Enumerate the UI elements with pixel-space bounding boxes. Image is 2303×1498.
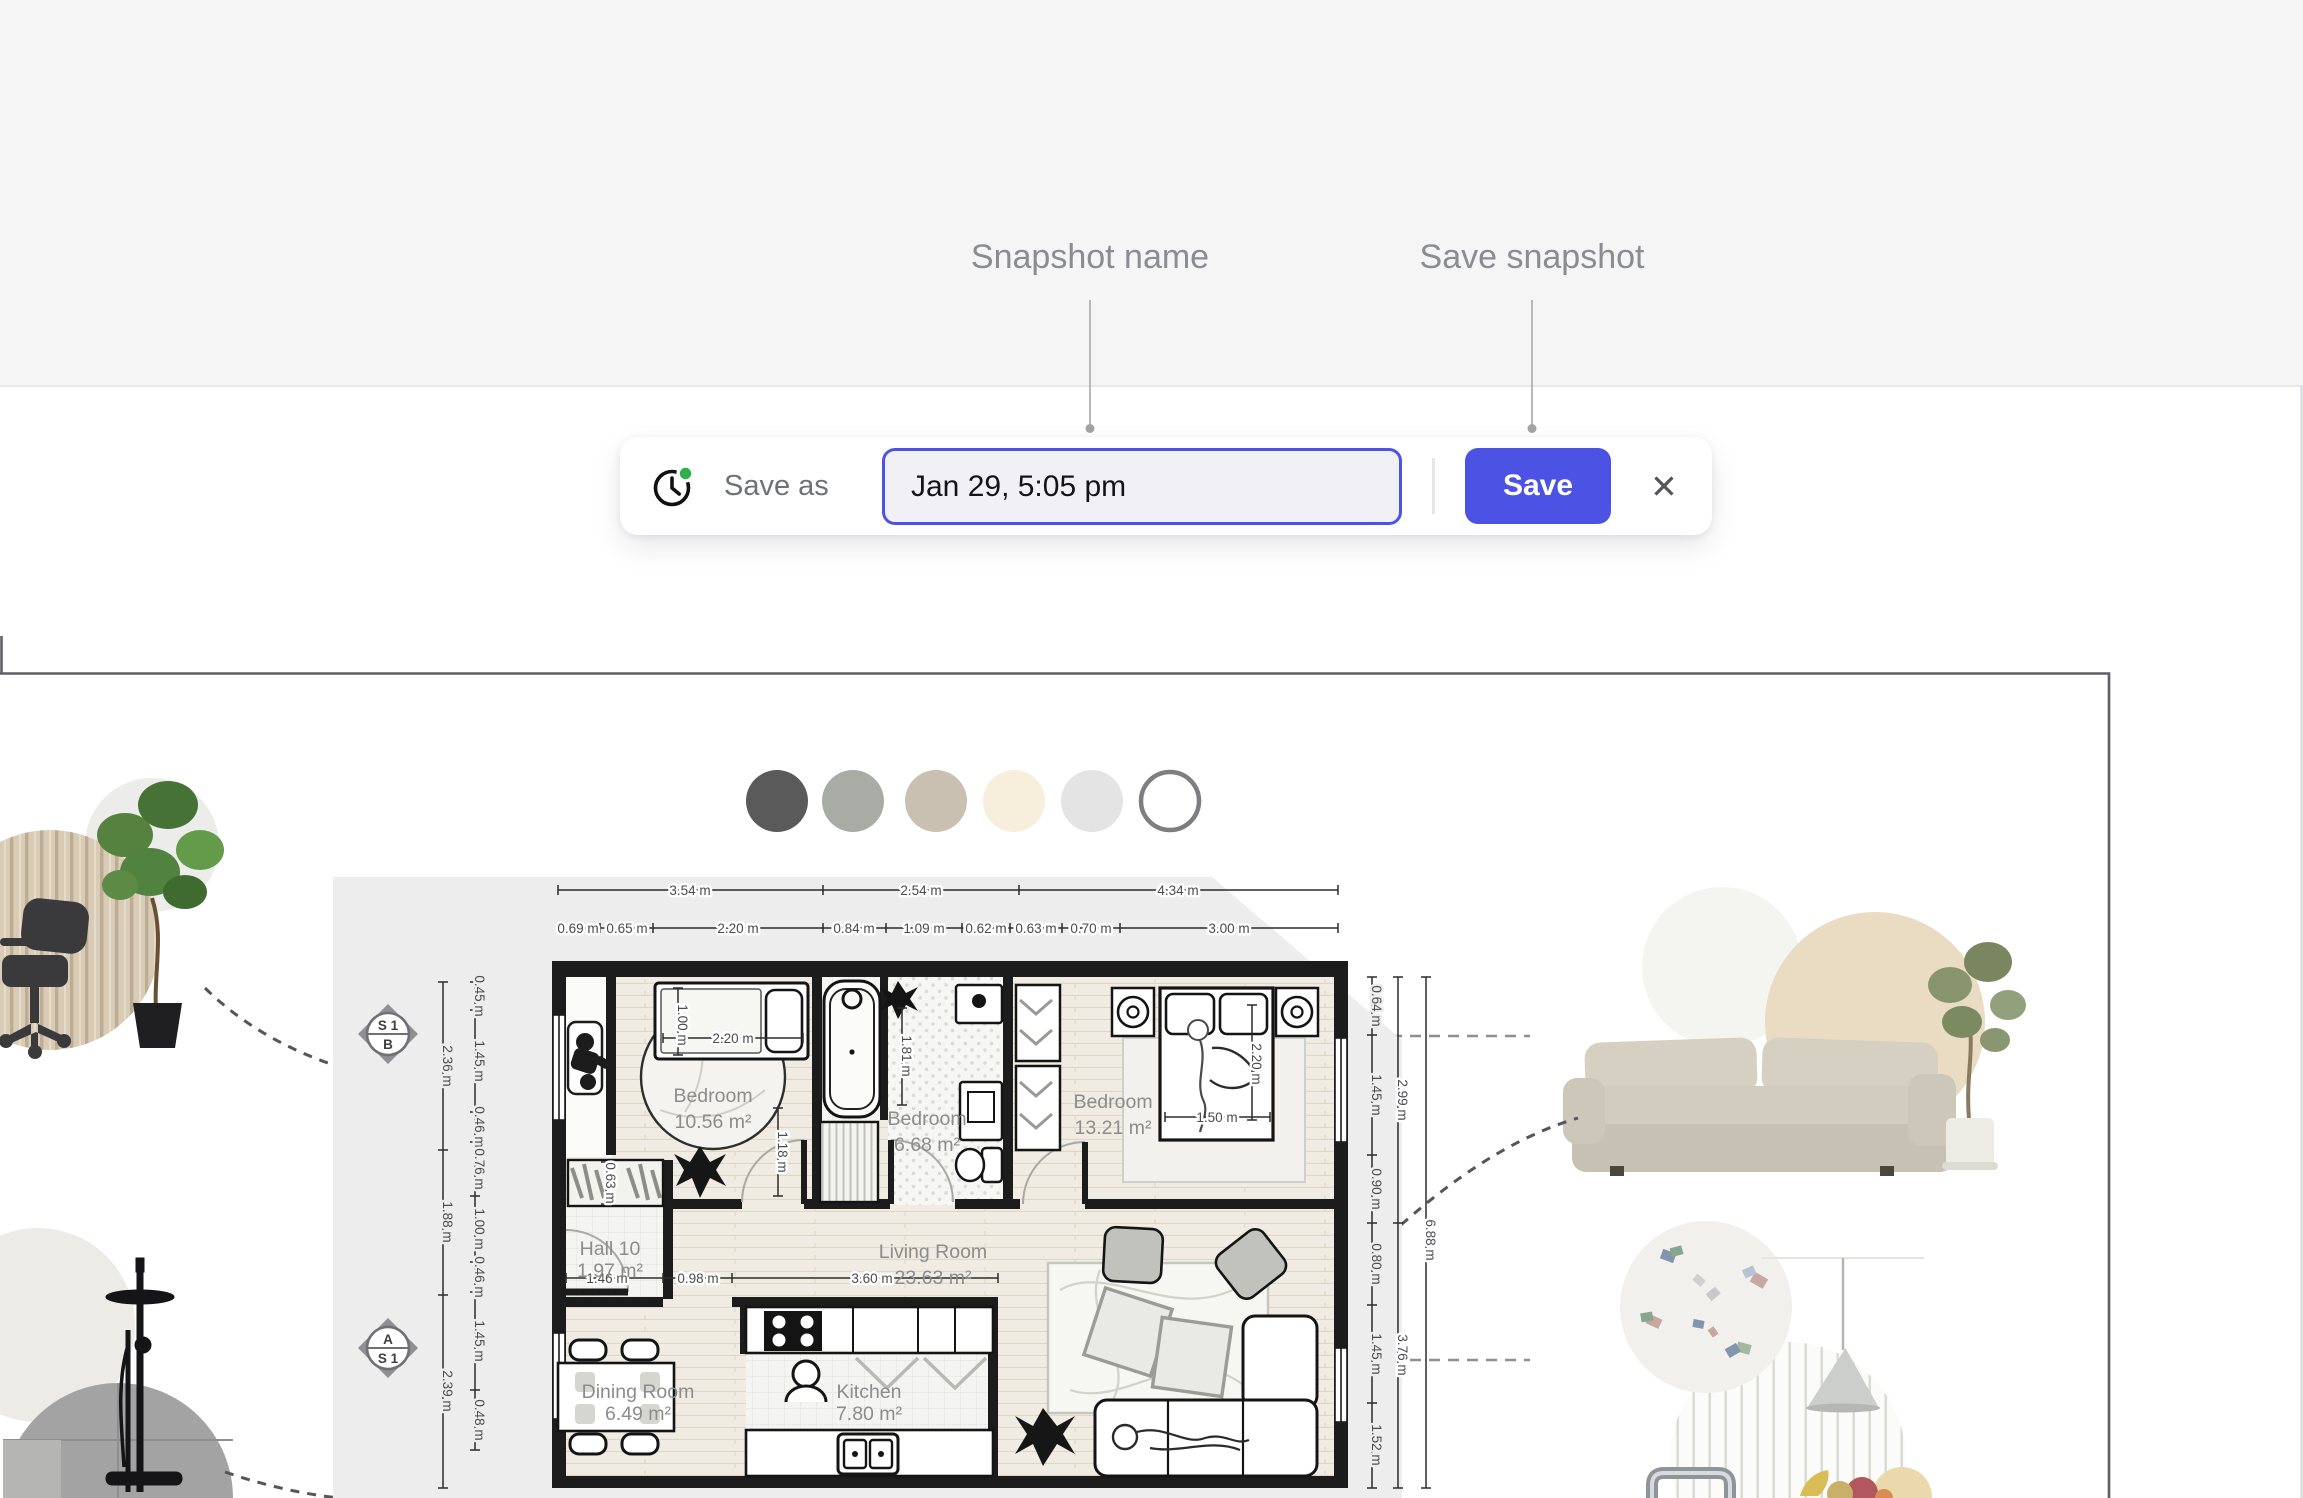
- annotation-banner: Snapshot name Save snapshot: [0, 0, 2303, 387]
- svg-text:1.52 m: 1.52 m: [1369, 1424, 1384, 1465]
- design-canvas[interactable]: 3.54 m 2.54 m 4.34 m 0.69 m 0.65 m 2.20 …: [0, 386, 2303, 1498]
- svg-text:3.00 m: 3.00 m: [1208, 921, 1249, 936]
- moodboard-sofa[interactable]: [1563, 887, 2026, 1176]
- annotation-snapshot-name: Snapshot name: [971, 238, 1209, 277]
- sofa: [1563, 1037, 1956, 1176]
- moodboard-office-chair[interactable]: [0, 778, 224, 1059]
- svg-text:3.54 m: 3.54 m: [669, 883, 710, 898]
- svg-text:0.69 m: 0.69 m: [557, 921, 598, 936]
- svg-text:1.00 m: 1.00 m: [675, 1004, 690, 1045]
- svg-text:0.46 m: 0.46 m: [472, 1256, 487, 1297]
- svg-text:1.00 m: 1.00 m: [472, 1208, 487, 1249]
- svg-text:1.45 m: 1.45 m: [472, 1320, 487, 1361]
- svg-text:S 1: S 1: [378, 1351, 399, 1366]
- swatch-6[interactable]: [1141, 772, 1199, 830]
- svg-text:Hall 10: Hall 10: [580, 1238, 641, 1260]
- swatch-2[interactable]: [822, 770, 884, 832]
- svg-text:4.34 m: 4.34 m: [1157, 883, 1198, 898]
- svg-text:0.45 m: 0.45 m: [472, 975, 487, 1016]
- svg-text:3.76 m: 3.76 m: [1395, 1334, 1410, 1375]
- svg-text:Living Room: Living Room: [879, 1241, 987, 1263]
- moodboard-shower[interactable]: [0, 1228, 233, 1498]
- svg-text:0.62 m: 0.62 m: [965, 921, 1006, 936]
- svg-text:0.64 m: 0.64 m: [1369, 985, 1384, 1026]
- annotation-save-snapshot: Save snapshot: [1420, 238, 1645, 277]
- svg-text:1.18 m: 1.18 m: [775, 1131, 790, 1172]
- svg-text:1.09 m: 1.09 m: [903, 921, 944, 936]
- svg-text:10.56 m²: 10.56 m²: [675, 1111, 752, 1133]
- svg-text:6.49 m²: 6.49 m²: [605, 1403, 672, 1425]
- svg-text:1.81 m: 1.81 m: [899, 1035, 914, 1076]
- svg-text:0.98 m: 0.98 m: [677, 1271, 718, 1286]
- svg-text:0.48 m: 0.48 m: [472, 1399, 487, 1440]
- svg-text:2.99 m: 2.99 m: [1395, 1079, 1410, 1120]
- swatch-5[interactable]: [1061, 770, 1123, 832]
- svg-text:0.65 m: 0.65 m: [606, 921, 647, 936]
- svg-text:0.70 m: 0.70 m: [1070, 921, 1111, 936]
- svg-text:0.80 m: 0.80 m: [1369, 1243, 1384, 1284]
- svg-text:13.21 m²: 13.21 m²: [1075, 1117, 1152, 1139]
- svg-text:0.63 m: 0.63 m: [603, 1162, 618, 1203]
- living-room-furniture: [1015, 1225, 1317, 1476]
- svg-text:Bedroom: Bedroom: [1073, 1091, 1152, 1113]
- svg-text:1.45 m: 1.45 m: [1369, 1074, 1384, 1115]
- svg-text:6.68 m²: 6.68 m²: [894, 1134, 961, 1156]
- svg-text:Kitchen: Kitchen: [836, 1381, 901, 1403]
- svg-text:2.36 m: 2.36 m: [440, 1045, 455, 1086]
- svg-text:0.84 m: 0.84 m: [833, 921, 874, 936]
- svg-text:1.97 m²: 1.97 m²: [577, 1260, 644, 1282]
- svg-text:Bedroom: Bedroom: [887, 1108, 966, 1130]
- svg-text:Dining Room: Dining Room: [582, 1381, 695, 1403]
- svg-text:2.54 m: 2.54 m: [900, 883, 941, 898]
- svg-text:2.20 m: 2.20 m: [1249, 1043, 1264, 1084]
- svg-text:3.60 m: 3.60 m: [851, 1271, 892, 1286]
- svg-text:2.20 m: 2.20 m: [717, 921, 758, 936]
- svg-text:1.45 m: 1.45 m: [472, 1040, 487, 1081]
- svg-text:S 1: S 1: [378, 1018, 399, 1033]
- svg-text:1.50 m: 1.50 m: [1196, 1110, 1237, 1125]
- svg-text:0.63 m: 0.63 m: [1015, 921, 1056, 936]
- swatch-3[interactable]: [905, 770, 967, 832]
- swatch-4[interactable]: [983, 770, 1045, 832]
- svg-text:1.88 m: 1.88 m: [440, 1201, 455, 1242]
- svg-text:0.46 m: 0.46 m: [472, 1106, 487, 1147]
- svg-text:2.20 m: 2.20 m: [712, 1031, 753, 1046]
- svg-text:0.76 m: 0.76 m: [472, 1148, 487, 1189]
- svg-text:A: A: [383, 1332, 393, 1347]
- svg-text:1.45 m: 1.45 m: [1369, 1333, 1384, 1374]
- terrazzo-circle: [1620, 1221, 1792, 1393]
- svg-text:2.39 m: 2.39 m: [440, 1370, 455, 1411]
- swatch-1[interactable]: [746, 770, 808, 832]
- bathroom-fixtures: [820, 981, 880, 1202]
- palette-swatches: [746, 770, 1199, 832]
- svg-text:Bedroom: Bedroom: [673, 1085, 752, 1107]
- svg-text:6.88 m: 6.88 m: [1423, 1219, 1438, 1260]
- svg-text:7.80 m²: 7.80 m²: [836, 1403, 903, 1425]
- moodboard-kitchen[interactable]: [1620, 1221, 1932, 1498]
- floor-plan[interactable]: 3.54 m 2.54 m 4.34 m 0.69 m 0.65 m 2.20 …: [333, 877, 1438, 1498]
- svg-text:B: B: [383, 1037, 393, 1052]
- svg-text:23.63 m²: 23.63 m²: [895, 1267, 972, 1289]
- svg-text:0.90 m: 0.90 m: [1369, 1168, 1384, 1209]
